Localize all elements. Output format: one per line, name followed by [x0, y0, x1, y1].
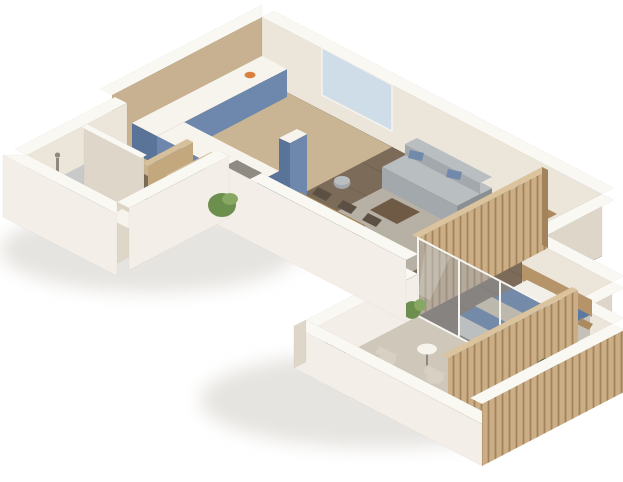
floor-plan-stage [0, 0, 623, 482]
fruit-bowl [245, 72, 256, 78]
pouf-top [334, 176, 350, 185]
balcony-chair-2-seat [426, 372, 444, 384]
balcony-table-top [417, 344, 437, 355]
balcony-parapet-end [294, 320, 306, 368]
shower-head [55, 152, 60, 157]
floor-plan-render [0, 0, 623, 482]
indoor-plant-highlight [222, 193, 238, 205]
slat-partition-end [542, 167, 548, 248]
balcony-plant-small-highlight [414, 299, 426, 311]
